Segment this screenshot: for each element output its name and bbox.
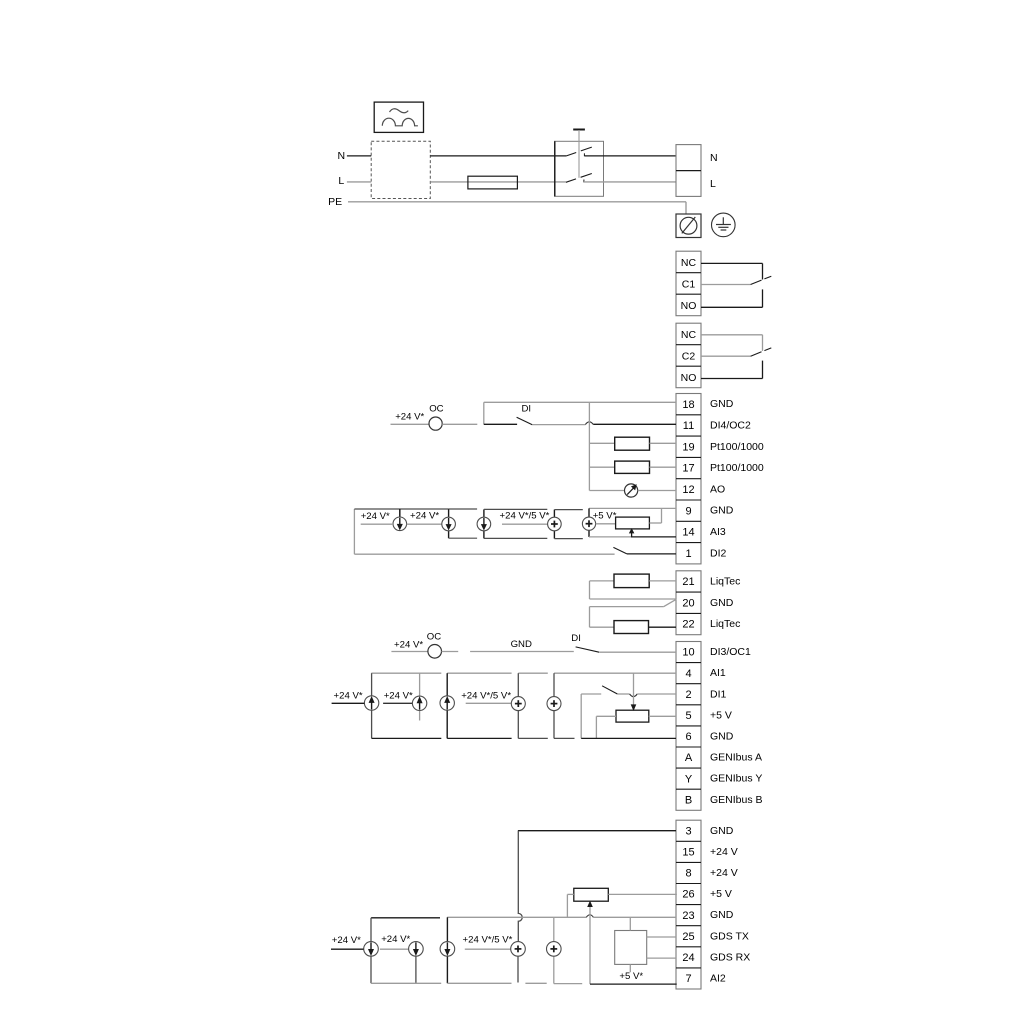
svg-text:C2: C2: [682, 350, 696, 362]
svg-text:GND: GND: [511, 639, 532, 650]
svg-text:+24 V: +24 V: [710, 867, 738, 879]
svg-text:1: 1: [685, 548, 691, 560]
svg-text:21: 21: [682, 576, 694, 588]
svg-text:PE: PE: [328, 196, 342, 208]
svg-text:GENIbus B: GENIbus B: [710, 794, 763, 806]
svg-text:OC: OC: [429, 403, 443, 414]
svg-text:NC: NC: [681, 257, 697, 269]
svg-text:GND: GND: [710, 597, 734, 609]
svg-text:5: 5: [685, 710, 691, 722]
svg-text:+24 V*: +24 V*: [394, 639, 423, 650]
svg-text:GENIbus A: GENIbus A: [710, 752, 762, 764]
svg-text:L: L: [710, 178, 716, 190]
svg-text:17: 17: [682, 463, 694, 475]
svg-text:NO: NO: [681, 300, 697, 312]
svg-text:DI2: DI2: [710, 547, 727, 559]
svg-text:4: 4: [685, 668, 691, 680]
svg-text:DI3/OC1: DI3/OC1: [710, 646, 751, 658]
svg-text:A: A: [685, 752, 693, 764]
svg-text:19: 19: [682, 441, 694, 453]
svg-text:+24 V: +24 V: [710, 846, 738, 858]
svg-text:+24 V*/5 V*: +24 V*/5 V*: [500, 511, 550, 522]
svg-text:N: N: [338, 150, 346, 162]
svg-text:GND: GND: [710, 505, 734, 517]
svg-text:3: 3: [685, 825, 691, 837]
svg-text:25: 25: [682, 931, 694, 943]
svg-text:23: 23: [682, 910, 694, 922]
svg-text:C1: C1: [682, 278, 696, 290]
svg-text:8: 8: [685, 868, 691, 880]
svg-text:2: 2: [685, 689, 691, 701]
svg-text:+5 V: +5 V: [710, 888, 732, 900]
svg-text:DI: DI: [522, 404, 532, 415]
svg-text:Pt100/1000: Pt100/1000: [710, 441, 764, 453]
svg-text:6: 6: [685, 731, 691, 743]
svg-text:+24 V*/5 V*: +24 V*/5 V*: [461, 691, 511, 702]
svg-text:11: 11: [683, 420, 694, 432]
svg-text:14: 14: [682, 527, 694, 539]
svg-text:B: B: [685, 794, 692, 806]
svg-text:+24 V*: +24 V*: [361, 511, 390, 522]
svg-text:7: 7: [685, 973, 691, 985]
svg-text:+24 V*/5 V*: +24 V*/5 V*: [463, 935, 513, 946]
svg-text:15: 15: [682, 846, 694, 858]
svg-text:GDS RX: GDS RX: [710, 951, 750, 963]
svg-text:OC: OC: [427, 632, 441, 643]
svg-text:GND: GND: [710, 398, 734, 410]
svg-text:NC: NC: [681, 329, 697, 341]
svg-text:NO: NO: [681, 372, 697, 384]
svg-text:+24 V*: +24 V*: [410, 510, 439, 521]
svg-text:AO: AO: [710, 483, 725, 495]
svg-text:GND: GND: [710, 730, 734, 742]
svg-text:20: 20: [682, 597, 694, 609]
svg-text:24: 24: [682, 952, 694, 964]
svg-text:GND: GND: [710, 825, 734, 837]
svg-text:DI4/OC2: DI4/OC2: [710, 419, 751, 431]
svg-text:GND: GND: [710, 909, 734, 921]
svg-text:+24 V*: +24 V*: [384, 690, 413, 701]
svg-text:+24 V*: +24 V*: [381, 934, 410, 945]
svg-text:Pt100/1000: Pt100/1000: [710, 462, 764, 474]
svg-text:L: L: [338, 175, 344, 187]
svg-text:10: 10: [682, 647, 694, 659]
svg-text:LiqTec: LiqTec: [710, 618, 740, 630]
svg-text:22: 22: [682, 619, 694, 631]
svg-text:18: 18: [682, 399, 694, 411]
svg-text:+24 V*: +24 V*: [395, 411, 424, 422]
svg-text:DI1: DI1: [710, 688, 727, 700]
svg-text:26: 26: [682, 889, 694, 901]
svg-text:DI: DI: [571, 633, 581, 644]
svg-text:Y: Y: [685, 773, 693, 785]
svg-text:+24 V*: +24 V*: [334, 690, 363, 701]
svg-text:12: 12: [682, 484, 694, 496]
svg-text:9: 9: [685, 505, 691, 517]
svg-text:+5 V*: +5 V*: [619, 971, 643, 982]
svg-text:AI2: AI2: [710, 972, 726, 984]
svg-text:GENIbus Y: GENIbus Y: [710, 773, 762, 785]
svg-text:+24 V*: +24 V*: [332, 935, 361, 946]
svg-text:AI1: AI1: [710, 667, 726, 679]
svg-text:LiqTec: LiqTec: [710, 575, 740, 587]
svg-text:GDS TX: GDS TX: [710, 930, 749, 942]
svg-text:N: N: [710, 152, 718, 164]
svg-text:+5 V: +5 V: [710, 709, 732, 721]
svg-text:AI3: AI3: [710, 526, 726, 538]
svg-text:+5 V*: +5 V*: [593, 511, 617, 522]
